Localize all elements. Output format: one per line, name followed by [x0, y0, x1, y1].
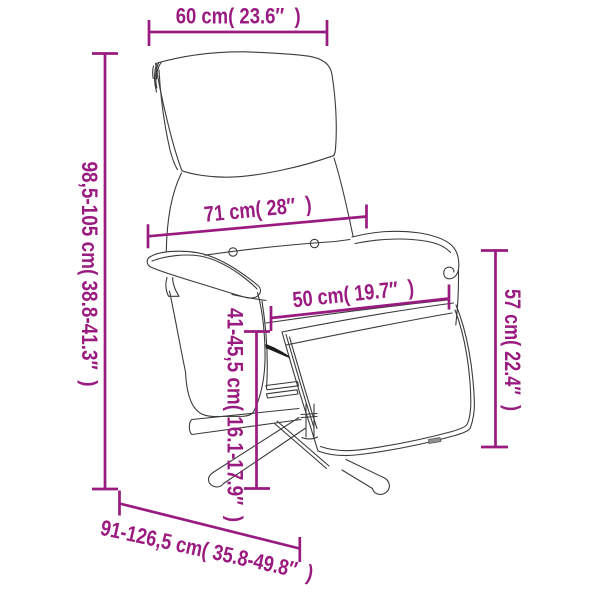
svg-text:98,5-105 cm( 38.8-41.3″ ): 98,5-105 cm( 38.8-41.3″ ): [77, 162, 102, 387]
svg-text:57 cm( 22.4″ ): 57 cm( 22.4″ ): [500, 289, 525, 411]
svg-text:41-45,5 cm( 16.1-17.9″ ): 41-45,5 cm( 16.1-17.9″ ): [223, 308, 248, 522]
svg-text:60 cm( 23.6″ ): 60 cm( 23.6″ ): [176, 3, 301, 28]
